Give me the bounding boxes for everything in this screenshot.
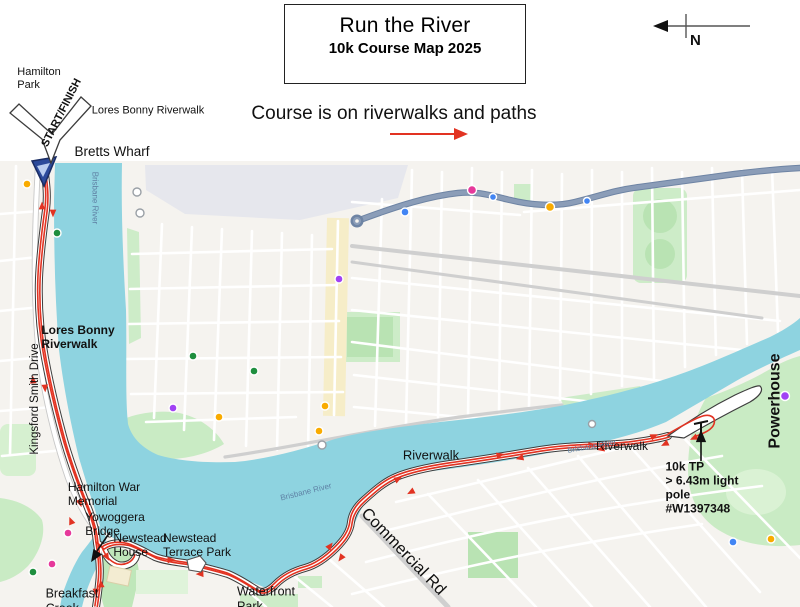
transit-stop-icon bbox=[29, 568, 37, 576]
title-box: Run the River 10k Course Map 2025 bbox=[284, 4, 526, 84]
transit-stop-icon bbox=[729, 538, 737, 546]
transit-stop-icon bbox=[401, 208, 409, 216]
transit-stop-icon bbox=[169, 404, 177, 412]
course-note: Course is on riverwalks and paths bbox=[251, 103, 536, 125]
transit-stop-icon bbox=[335, 275, 343, 283]
transit-stop-icon bbox=[189, 352, 197, 360]
transit-stop-icon bbox=[250, 367, 258, 375]
transit-stop-icon bbox=[490, 194, 497, 201]
start-finish-callout bbox=[10, 97, 91, 163]
map-title: Run the River bbox=[285, 14, 525, 38]
transit-stop-icon bbox=[64, 529, 72, 537]
transit-stop-icon bbox=[468, 186, 477, 195]
transit-stop-icon bbox=[589, 421, 596, 428]
transit-stop-icon bbox=[546, 203, 555, 212]
transit-stop-icon bbox=[318, 441, 326, 449]
transit-stop-icon bbox=[584, 198, 591, 205]
north-label: N bbox=[690, 32, 701, 49]
transit-stop-icon bbox=[321, 402, 329, 410]
note-arrow-icon bbox=[390, 128, 468, 140]
transit-stop-icon bbox=[48, 560, 56, 568]
transit-stop-icon bbox=[767, 535, 775, 543]
transit-stop-icon bbox=[133, 188, 141, 196]
transit-stop-icon bbox=[315, 427, 323, 435]
map-subtitle: 10k Course Map 2025 bbox=[285, 40, 525, 57]
transit-stop-icon bbox=[215, 413, 223, 421]
map-canvas[interactable] bbox=[0, 0, 800, 607]
course-map-page: Hamilton ParkSTART/FINISHLores Bonny Riv… bbox=[0, 0, 800, 607]
transit-stop-icon bbox=[781, 392, 790, 401]
transit-stop-icon bbox=[23, 180, 31, 188]
transit-stop-icon bbox=[136, 209, 144, 217]
transit-stop-icon bbox=[53, 229, 61, 237]
north-arrow-icon bbox=[653, 14, 750, 38]
